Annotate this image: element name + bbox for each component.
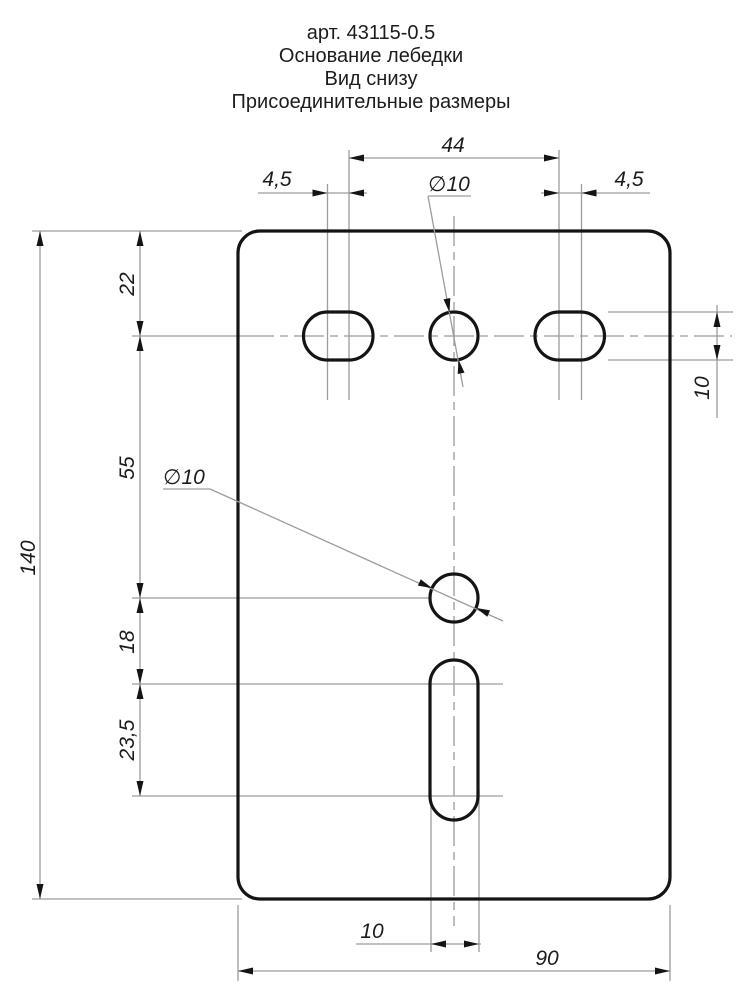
drawing-sheet: арт. 43115-0.5 Основание лебедки Вид сни… <box>0 0 742 1000</box>
view-label: Вид снизу <box>325 68 418 90</box>
arrowhead-up <box>137 336 144 351</box>
arrowhead-down <box>137 321 144 336</box>
dim-value-18: 18 <box>116 630 139 654</box>
leader-top-hole-diameter: ∅10 <box>428 173 471 387</box>
dim-hole-row-to-center-hole: 55 <box>116 336 144 598</box>
dim-bottom-slot-width: 10 <box>356 920 481 948</box>
arrowhead-right <box>544 190 559 197</box>
centerlines <box>244 216 732 926</box>
dim-value-22: 22 <box>116 272 139 297</box>
arrowhead-up <box>137 684 144 699</box>
arrowhead-down <box>137 669 144 684</box>
arrowhead-right <box>464 941 479 948</box>
dim-value-10-bottom: 10 <box>360 920 384 943</box>
arrowhead-upper <box>418 579 432 588</box>
article-number: арт. 43115-0.5 <box>307 22 435 44</box>
arrowhead-up <box>714 312 721 327</box>
arrowhead-down <box>137 583 144 598</box>
dim-slot-offset-left: 4,5 <box>258 168 367 197</box>
dim-bottom-slot-arc-span: 23,5 <box>116 684 144 796</box>
technical-drawing-canvas: арт. 43115-0.5 Основание лебедки Вид сни… <box>0 0 742 1000</box>
arrowhead-up <box>137 598 144 613</box>
dim-top-edge-to-hole-row: 22 <box>116 231 144 336</box>
dim-value-23-5: 23,5 <box>116 719 139 761</box>
arrowhead-right <box>313 190 328 197</box>
arrowhead-left <box>349 155 364 162</box>
dim-value-90: 90 <box>535 947 559 970</box>
dim-value-10-right: 10 <box>691 376 714 400</box>
arrowhead-right <box>544 155 559 162</box>
arrowhead-right <box>655 968 670 975</box>
arrowhead-left <box>431 941 446 948</box>
dim-value-dia10-center: ∅10 <box>163 466 205 489</box>
arrowhead-up <box>37 231 44 246</box>
dim-value-45-left: 4,5 <box>262 168 292 191</box>
dim-value-140: 140 <box>17 540 40 575</box>
part-name: Основание лебедки <box>279 45 463 67</box>
arrowhead-lower <box>476 608 490 617</box>
arrowhead-down <box>137 781 144 796</box>
dim-value-dia10-top: ∅10 <box>428 173 470 196</box>
dim-value-44: 44 <box>441 134 464 157</box>
arrowhead-upper <box>444 298 451 312</box>
dim-overall-width: 90 <box>238 947 670 975</box>
arrowhead-down <box>714 345 721 360</box>
arrowhead-left <box>349 190 364 197</box>
leader-line <box>210 489 503 621</box>
dim-slot-offset-right: 4,5 <box>541 168 650 197</box>
arrowhead-down <box>37 884 44 899</box>
dim-top-holes-span: 44 <box>349 134 559 162</box>
dim-value-55: 55 <box>116 456 139 480</box>
dim-right-slot-width: 10 <box>691 305 721 418</box>
subtitle-label: Присоединительные размеры <box>232 91 511 113</box>
dim-center-hole-to-slot: 18 <box>116 598 144 684</box>
arrowhead-left <box>238 968 253 975</box>
arrowhead-lower <box>458 360 465 374</box>
dim-overall-height: 140 <box>17 231 44 899</box>
arrowhead-up <box>137 231 144 246</box>
arrowhead-left <box>582 190 597 197</box>
title-block: арт. 43115-0.5 Основание лебедки Вид сни… <box>232 22 511 113</box>
dim-value-45-right: 4,5 <box>614 168 644 191</box>
